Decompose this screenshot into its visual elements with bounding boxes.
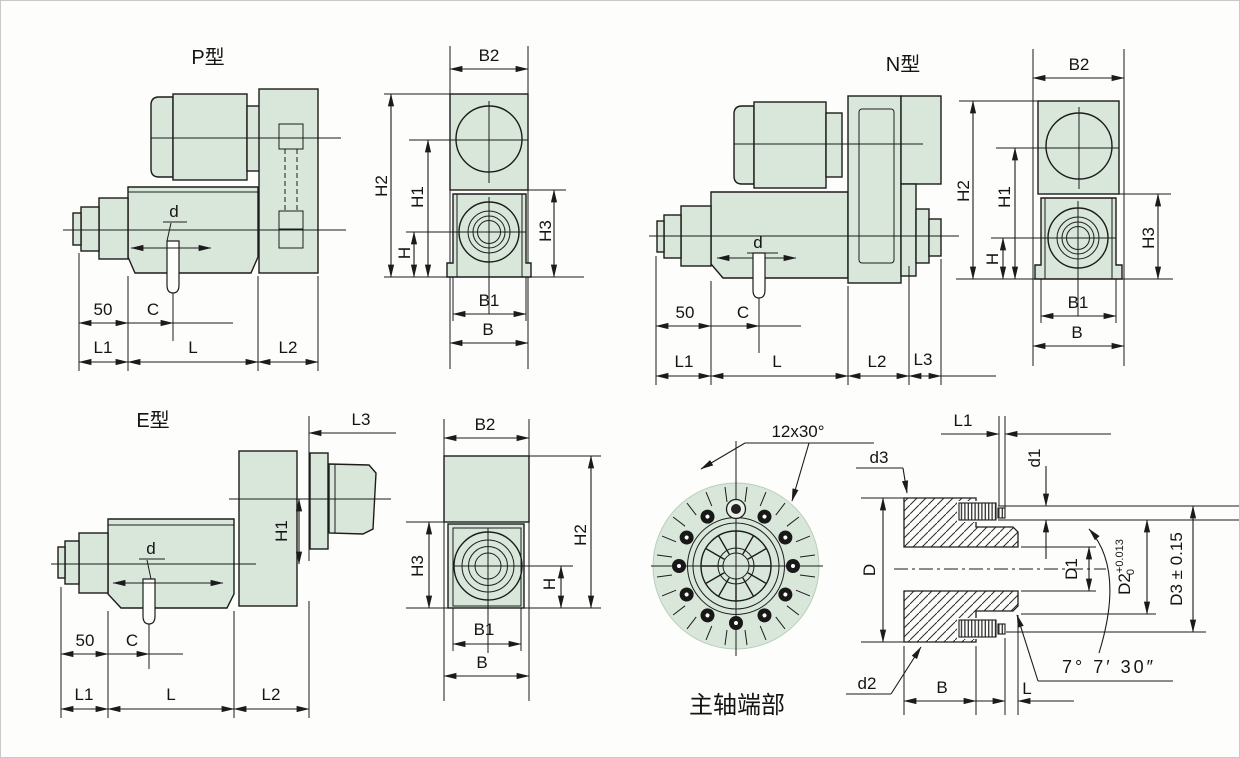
- dim-label-l: L: [772, 352, 781, 371]
- d2-upper-tolerance: +0.013: [1114, 539, 1126, 573]
- clamp-plate: [310, 453, 328, 549]
- dim-label-c: C: [126, 631, 138, 650]
- view-title: E型: [136, 409, 169, 432]
- view-n-side: N型 d 50 C L1 L L2 L3: [649, 53, 996, 385]
- dim-label-c: C: [737, 303, 749, 322]
- dim-label-l: L: [1022, 679, 1031, 698]
- stop-pin: [143, 579, 155, 624]
- dim-label-d3: d3: [870, 448, 889, 467]
- dim-label-b: B: [1071, 323, 1082, 342]
- dim-label-l3: L3: [352, 410, 371, 429]
- view-title: N型: [886, 53, 920, 76]
- dim-label-l2: L2: [262, 685, 281, 704]
- dim-label-D: D: [860, 564, 879, 576]
- view-p-front: B2 H2 H1 H H3 B1 B: [372, 46, 584, 369]
- note-leader: [701, 443, 745, 469]
- view-spindle-end: 12x30° 主轴端部: [651, 422, 874, 719]
- dim-label-h3: H3: [536, 220, 555, 242]
- dim-label-l3: L3: [914, 350, 933, 369]
- spindle-nose-step: [81, 207, 99, 251]
- d2-lower-tolerance: 0: [1125, 569, 1137, 575]
- motor-cap: [151, 97, 173, 177]
- dim-label-D3: D3 ± 0.15: [1167, 532, 1186, 606]
- dim-label-l1: L1: [94, 338, 113, 357]
- dim-label-h3: H3: [408, 555, 427, 577]
- dim-label-h2: H2: [954, 180, 973, 202]
- dim-label-l1: L1: [954, 411, 973, 430]
- bolt-section-bottom: [959, 620, 996, 637]
- d3-leader: [903, 468, 907, 493]
- technical-drawing: P型 d 50 C L1 L L2: [1, 1, 1240, 758]
- note-leader: [792, 443, 809, 501]
- dim-label-h2: H2: [571, 524, 590, 546]
- dim-label-l2: L2: [868, 352, 887, 371]
- dim-label-h1: H1: [995, 186, 1014, 208]
- dim-label-d2: d2: [858, 674, 877, 693]
- dim-label-b1: B1: [479, 291, 500, 310]
- angle-leader: [1017, 615, 1038, 681]
- bracket-step: [929, 219, 941, 256]
- view-p-side: P型 d 50 C L1 L L2: [63, 46, 346, 371]
- dim-label-l1: L1: [75, 685, 94, 704]
- dim-label-D2: D2+0.0130: [1114, 539, 1137, 595]
- dim-label-b1: B1: [474, 620, 495, 639]
- dim-label-b: B: [482, 320, 493, 339]
- dim-label-l: L: [188, 338, 197, 357]
- view-e-front: B2 H3 H2 H B1 B: [406, 415, 601, 701]
- dim-label-c: C: [147, 300, 159, 319]
- stop-pin: [753, 253, 765, 298]
- view-e-side: E型 H1 d 50 C L1 L L2 L3: [51, 409, 396, 718]
- dim-label-h1: H1: [272, 520, 291, 542]
- motor-body: [754, 102, 826, 188]
- spindle-nose-step: [65, 541, 79, 584]
- view-section: L1 d1 d3 d2 D D1 D2+0.0130 D3 ± 0.15: [846, 411, 1239, 715]
- view-title: P型: [191, 46, 224, 69]
- dim-label-d1: d1: [1025, 449, 1044, 468]
- spindle-nose-tip: [58, 547, 65, 578]
- dim-label-h: H: [395, 247, 414, 259]
- view-n-front: B2 H2 H1 H H3 B1 B: [954, 49, 1173, 366]
- dim-label-h: H: [983, 253, 1002, 265]
- upper-block: [444, 456, 529, 522]
- spindle-housing: [711, 192, 848, 278]
- stop-pin: [167, 241, 179, 293]
- motor-body: [173, 94, 247, 180]
- view-caption: 主轴端部: [689, 692, 785, 719]
- dim-label-d: d: [753, 233, 762, 252]
- ext-lines: [999, 416, 1005, 508]
- dim-label-h3: H3: [1139, 227, 1158, 249]
- d2-leader: [891, 647, 921, 694]
- drawing-sheet: P型 d 50 C L1 L L2: [0, 0, 1240, 758]
- dim-label-d: d: [146, 539, 155, 558]
- dim-label-h1: H1: [408, 186, 427, 208]
- spindle-nose: [79, 533, 108, 593]
- motor-cap: [734, 106, 754, 184]
- ext-lines: [998, 506, 1239, 520]
- dim-label-h2: H2: [372, 175, 391, 197]
- dim-label-l2: L2: [279, 338, 298, 357]
- dim-label-b: B: [936, 678, 947, 697]
- spindle-nose: [99, 198, 128, 259]
- dim-label-l1: L1: [675, 352, 694, 371]
- bolt-section-top: [959, 503, 996, 520]
- dim-label-h: H: [540, 578, 559, 590]
- bolt-pattern-note: 12x30°: [771, 422, 824, 441]
- taper-angle-note: 7° 7′ 30″: [1062, 657, 1156, 677]
- motor-step: [826, 113, 842, 177]
- bolt-head-stub: [998, 624, 1005, 634]
- dim-label-50: 50: [76, 631, 95, 650]
- dim-label-b2: B2: [479, 46, 500, 65]
- bracket-block: [901, 96, 941, 184]
- dim-label-b2: B2: [475, 415, 496, 434]
- d2-value: D2: [1115, 573, 1134, 595]
- dim-label-b2: B2: [1069, 55, 1090, 74]
- spindle-nose-tip: [73, 213, 81, 245]
- dim-label-b1: B1: [1068, 293, 1089, 312]
- dim-label-50: 50: [94, 300, 113, 319]
- dim-label-b: B: [476, 653, 487, 672]
- dim-label-l: L: [166, 685, 175, 704]
- bolt-head-stub: [998, 508, 1005, 518]
- mount-bracket: [848, 96, 901, 283]
- mount-bracket: [259, 89, 318, 273]
- bracket-strip: [901, 184, 916, 276]
- dim-label-50: 50: [676, 303, 695, 322]
- dim-label-d: d: [169, 202, 178, 221]
- dim-label-D1: D1: [1062, 558, 1081, 580]
